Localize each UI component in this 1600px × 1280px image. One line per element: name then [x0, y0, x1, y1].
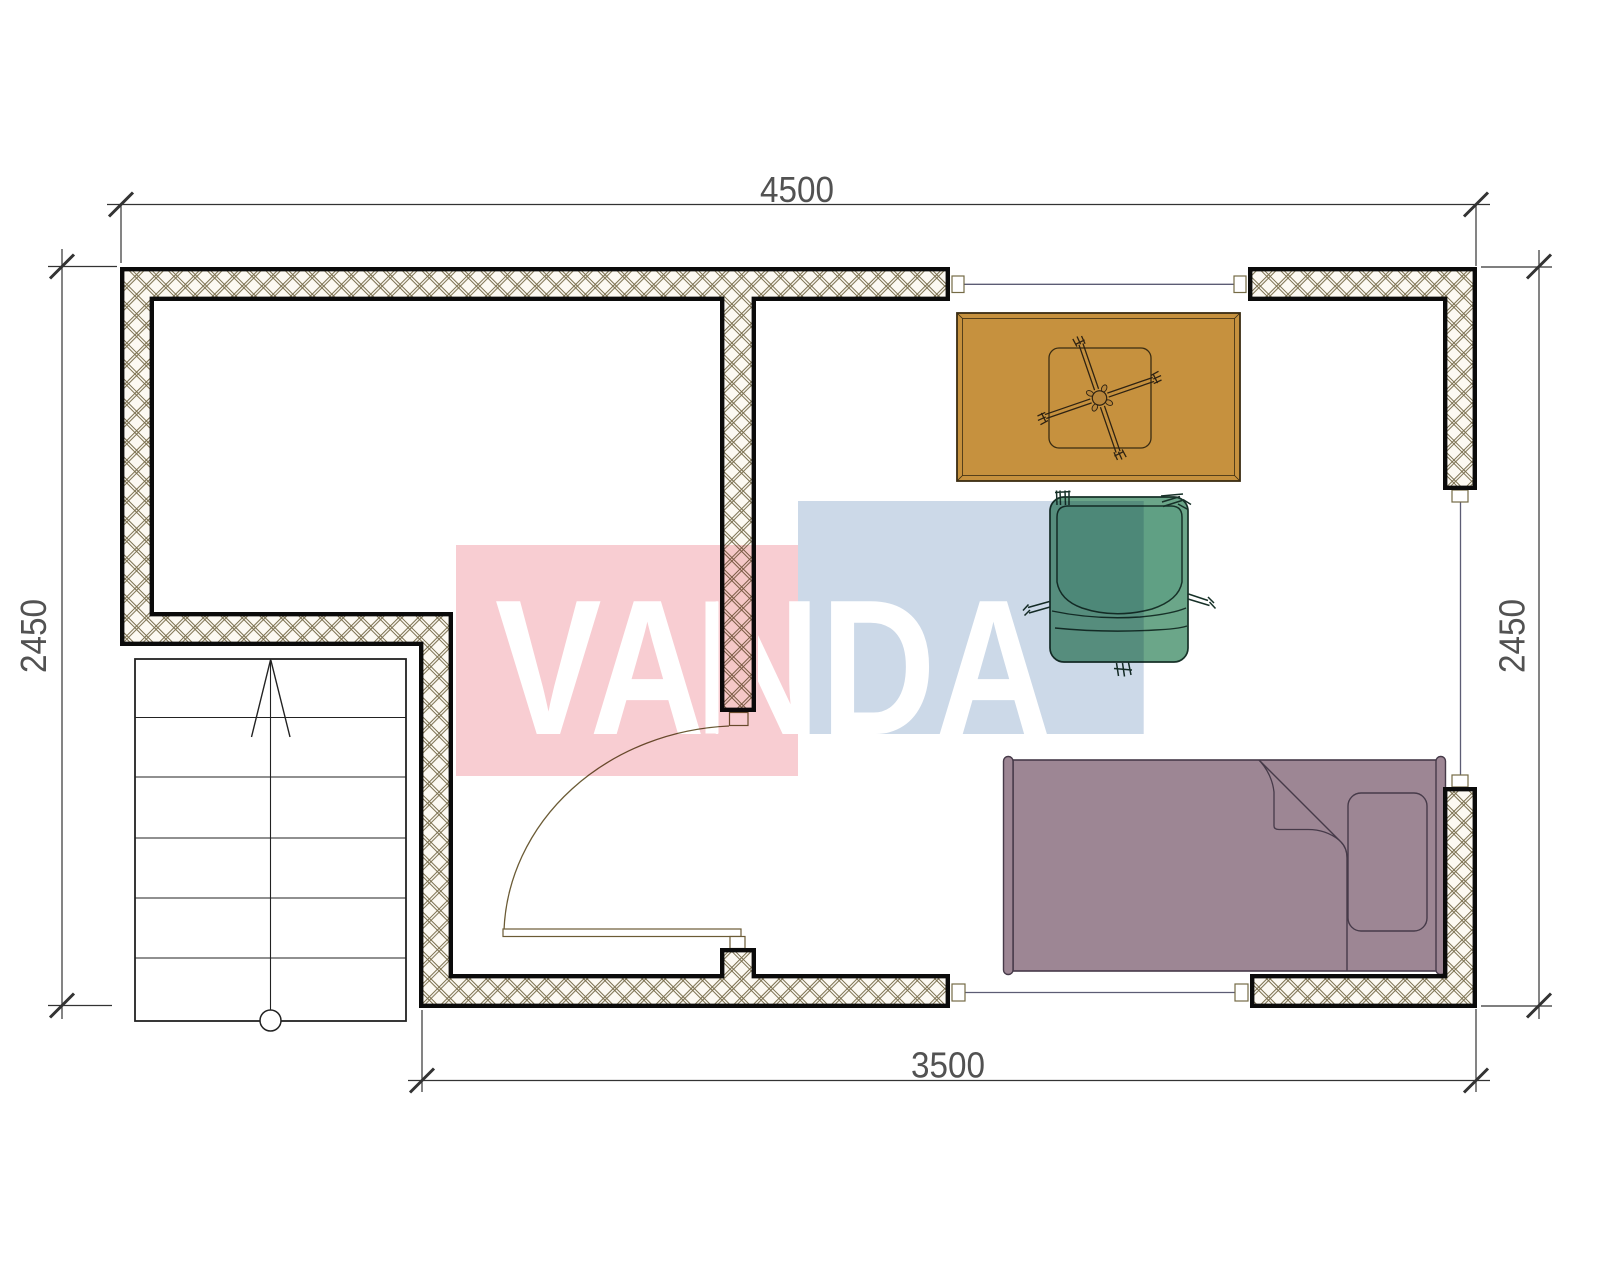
svg-text:4500: 4500: [760, 169, 834, 210]
svg-text:3500: 3500: [911, 1045, 985, 1086]
svg-text:2450: 2450: [13, 599, 54, 673]
svg-text:2450: 2450: [1492, 599, 1533, 673]
svg-text:VANDA: VANDA: [495, 560, 1051, 776]
